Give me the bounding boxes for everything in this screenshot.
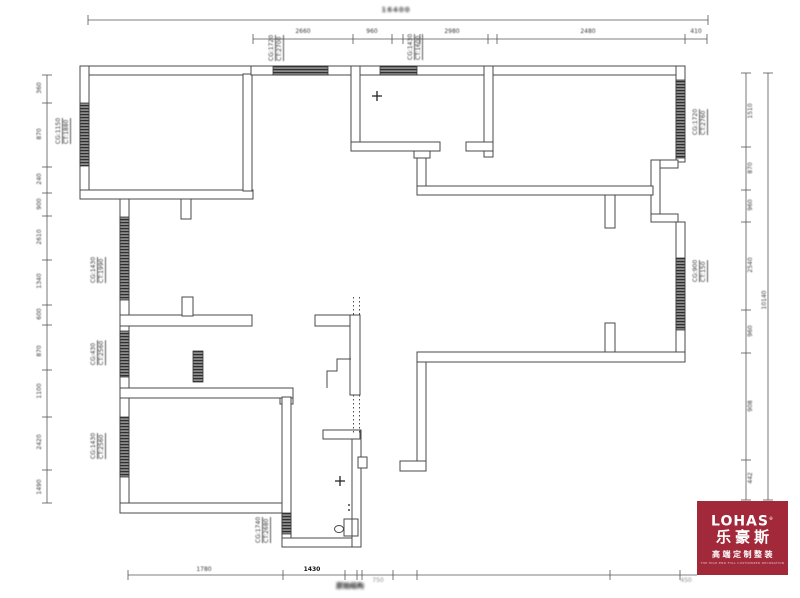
window-symbol [282, 513, 291, 534]
logo-brand-chinese: 乐豪斯 [712, 529, 773, 546]
window-symbol [676, 258, 685, 330]
logo-tagline: 高端定制整装 [710, 550, 775, 559]
walls [80, 66, 685, 547]
floorplan-drawing [0, 0, 800, 598]
window-symbol [120, 217, 129, 300]
wall-segment [417, 158, 426, 188]
wall-segment [493, 66, 685, 75]
wall-segment [120, 388, 293, 398]
wall-segment [120, 503, 283, 513]
wall-segment [243, 74, 252, 191]
wall-segment [417, 362, 426, 470]
window-symbol [120, 331, 129, 377]
registered-mark-icon: ® [769, 516, 774, 521]
closet-steps [327, 359, 351, 388]
wall-segment [400, 461, 426, 471]
window-symbol [676, 80, 685, 158]
wall-segment [466, 142, 493, 151]
wall-segment [351, 66, 360, 151]
wall-segment [352, 430, 361, 547]
lohas-logo: LOHAS® 乐豪斯 高端定制整装 THE HIGH-END FULL CUST… [697, 501, 788, 575]
wall-segment [414, 151, 430, 158]
toilet [335, 526, 344, 533]
logo-subline: THE HIGH-END FULL CUSTOMIZED DECORATION [701, 561, 785, 565]
logo-brand-text: LOHAS® [711, 511, 774, 530]
ceiling-light-icon [335, 476, 345, 486]
window-symbol [193, 351, 203, 382]
wall-segment [182, 297, 193, 316]
window-symbol [120, 417, 129, 477]
floorplan-page: 16400 原始结构 26609602980248041036087024090… [0, 0, 800, 598]
wall-segment [181, 199, 191, 219]
wall-segment [351, 66, 493, 75]
wall-segment [605, 195, 615, 228]
window-symbol [380, 66, 417, 75]
wall-segment [358, 457, 367, 468]
drain-dot [348, 504, 350, 506]
wall-segment [605, 323, 615, 352]
window-symbol [273, 66, 328, 75]
window-symbol [80, 103, 89, 166]
drain-dot [348, 509, 350, 511]
wall-segment [417, 186, 653, 195]
window-symbols [80, 66, 685, 534]
wall-segment [80, 190, 253, 199]
wall-segment [350, 315, 360, 395]
wall-segment [282, 538, 360, 547]
wall-segment [351, 142, 440, 151]
wall-segment [417, 352, 685, 362]
dimension-chains [42, 15, 773, 580]
wall-segment [323, 430, 360, 439]
wall-segment [120, 315, 252, 326]
ceiling-light-icon [372, 91, 382, 101]
wall-segment [80, 66, 253, 75]
wall-segment [651, 214, 678, 222]
